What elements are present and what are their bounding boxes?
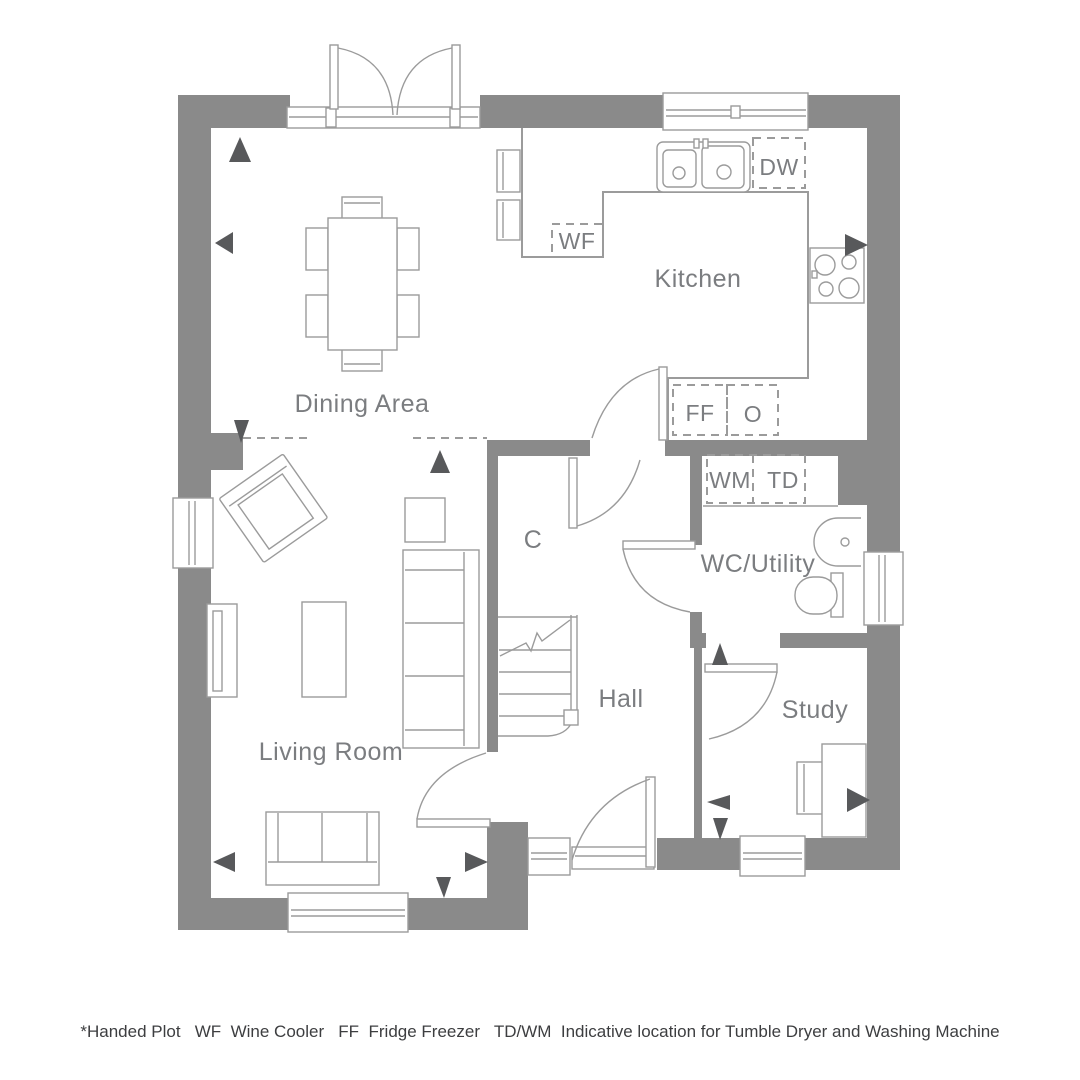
staircase <box>498 615 578 736</box>
floorplan-drawing: Kitchen Dining Area Living Room Hall Stu… <box>0 0 1080 960</box>
hall-label: Hall <box>598 685 643 713</box>
kitchen-label: Kitchen <box>655 265 742 293</box>
kitchen-door <box>592 367 667 440</box>
study-desk <box>797 744 866 837</box>
legend-footer: *Handed Plot WF Wine Cooler FF Fridge Fr… <box>0 977 1080 1080</box>
fridge-freezer-label: FF <box>685 400 714 426</box>
cupboard-label: C <box>524 526 543 554</box>
french-doors <box>287 45 480 128</box>
wc-basin <box>814 518 861 566</box>
wc-window <box>864 552 903 625</box>
sofa-three-seat <box>403 550 479 748</box>
oven-label: O <box>744 401 762 427</box>
floorplan-page: Kitchen Dining Area Living Room Hall Stu… <box>0 0 1080 1080</box>
washing-machine-label: WM <box>709 467 751 493</box>
sofa-two-seat <box>266 812 379 885</box>
hall-sidelight-window <box>528 838 570 875</box>
dining-label: Dining Area <box>295 390 430 418</box>
living-room-door <box>417 753 490 827</box>
wc-door <box>623 541 695 612</box>
cupboard-door <box>569 458 640 528</box>
dining-table-set <box>306 197 419 371</box>
wc-toilet <box>795 573 843 617</box>
living-side-window <box>173 498 213 568</box>
coffee-table <box>302 602 346 697</box>
front-door <box>572 777 655 869</box>
tv-unit <box>207 604 237 697</box>
study-label: Study <box>782 696 848 724</box>
hob <box>810 248 864 303</box>
wine-cooler-label: WF <box>559 228 596 254</box>
living-bottom-window <box>288 893 408 932</box>
study-door <box>705 664 777 739</box>
study-window <box>740 836 805 876</box>
kitchen-window <box>663 93 808 130</box>
side-table <box>405 498 445 542</box>
armchair <box>219 454 328 563</box>
living-label: Living Room <box>259 738 403 766</box>
legend-line-1: *Handed Plot WF Wine Cooler FF Fridge Fr… <box>0 1021 1080 1043</box>
kitchen-sink <box>657 139 750 192</box>
wc-label: WC/Utility <box>701 550 816 578</box>
dishwasher-label: DW <box>759 154 798 180</box>
tumble-dryer-label: TD <box>767 467 799 493</box>
interior-walls <box>487 440 867 898</box>
